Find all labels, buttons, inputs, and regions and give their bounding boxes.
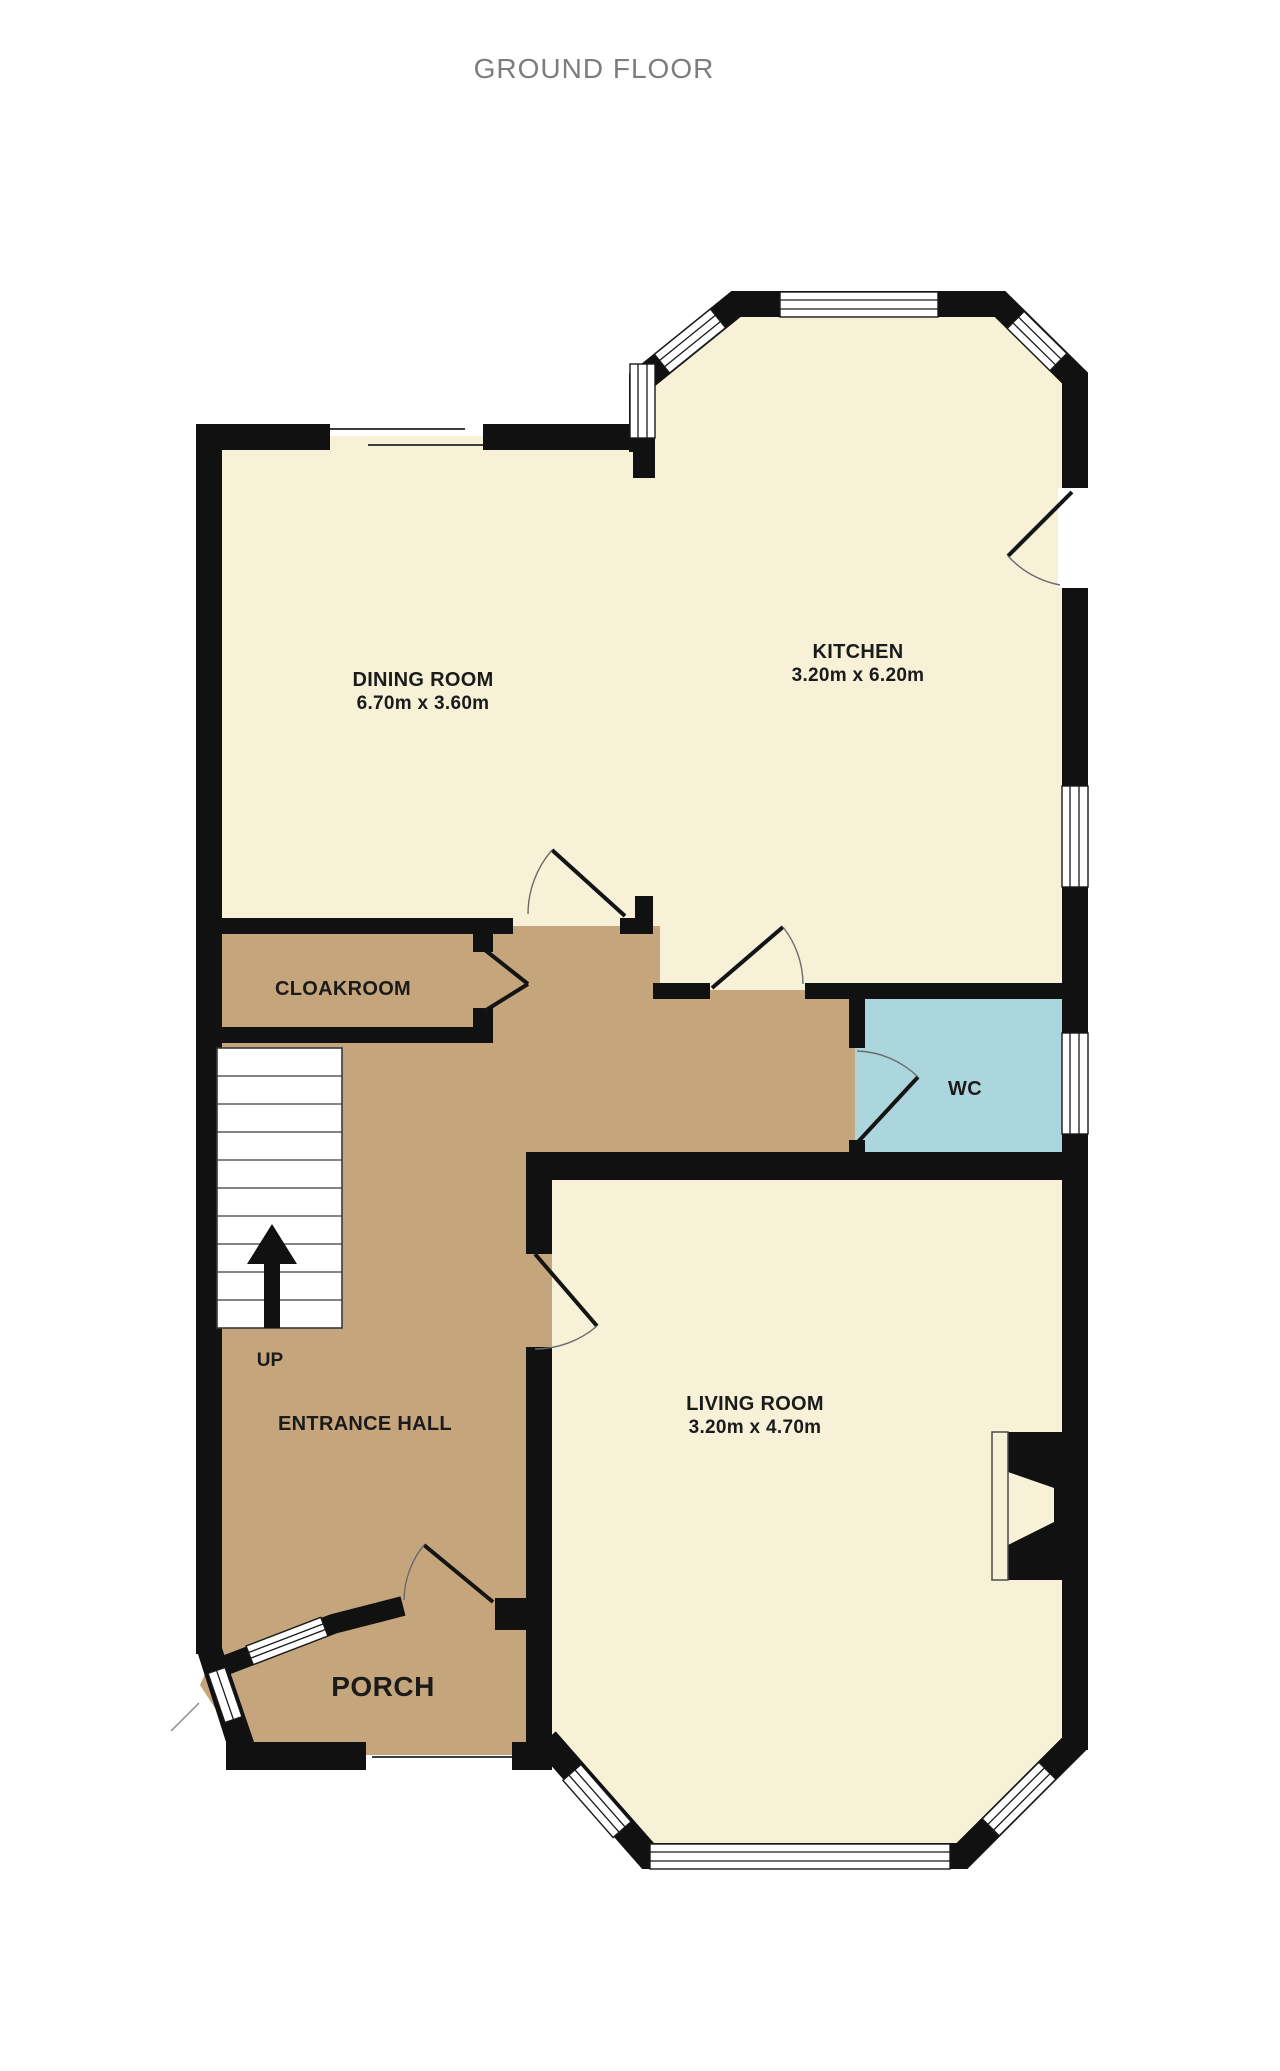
wall-living-left-a xyxy=(526,1152,552,1254)
wall-dining-hall-b xyxy=(620,918,653,934)
living-room-label: LIVING ROOM xyxy=(686,1393,824,1415)
kitchen-dimensions: 3.20m x 6.20m xyxy=(792,665,925,686)
porch-corner-sill-line xyxy=(171,1703,199,1731)
wall-dining-door-stub xyxy=(635,896,653,920)
window-kitchen-right xyxy=(1062,786,1088,887)
wall-living-top xyxy=(526,1152,1087,1180)
wall-porch-corner xyxy=(495,1598,552,1630)
wc-label: WC xyxy=(948,1078,982,1100)
living-room-dimensions: 3.20m x 4.70m xyxy=(689,1417,822,1438)
window-bay-top xyxy=(780,292,938,317)
porch-label: PORCH xyxy=(331,1671,435,1702)
wall-kitchen-hall-a xyxy=(653,983,710,999)
wall-porch-bottom-b xyxy=(512,1742,552,1770)
dining-room-label: DINING ROOM xyxy=(352,669,493,691)
wall-top-a xyxy=(196,424,330,450)
floorplan-page: GROUND FLOOR DINING ROOM 6.70m x 3.60m K… xyxy=(0,0,1280,2071)
wall-porch-bottom-a xyxy=(226,1742,366,1770)
floorplan-drawing: GROUND FLOOR DINING ROOM 6.70m x 3.60m K… xyxy=(0,0,1280,2071)
window-living-bay-bottom xyxy=(650,1844,950,1869)
wall-top-b xyxy=(483,424,633,450)
fireplace-hearth xyxy=(992,1432,1008,1580)
stairs xyxy=(217,1048,342,1328)
wall-bay-stub xyxy=(633,440,655,478)
wall-living-left-c xyxy=(526,1630,552,1744)
wall-cloakroom-bottom xyxy=(196,1027,493,1043)
page-title: GROUND FLOOR xyxy=(474,53,715,84)
window-bay-left xyxy=(630,364,655,438)
entrance-hall-label: ENTRANCE HALL xyxy=(278,1413,452,1435)
wall-cloakroom-stub-top xyxy=(473,934,493,952)
dining-room-dimensions: 6.70m x 3.60m xyxy=(357,693,490,714)
stairs-up-label: UP xyxy=(257,1350,284,1371)
room-wc xyxy=(855,995,1070,1157)
kitchen-label: KITCHEN xyxy=(813,641,904,663)
window-wc xyxy=(1062,1033,1088,1134)
wall-living-left-b xyxy=(526,1347,552,1598)
wall-wc-left-top xyxy=(849,999,865,1048)
wall-kitchen-hall-b xyxy=(805,983,1062,999)
wall-dining-hall-a xyxy=(222,918,513,934)
cloakroom-label: CLOAKROOM xyxy=(275,978,411,1000)
